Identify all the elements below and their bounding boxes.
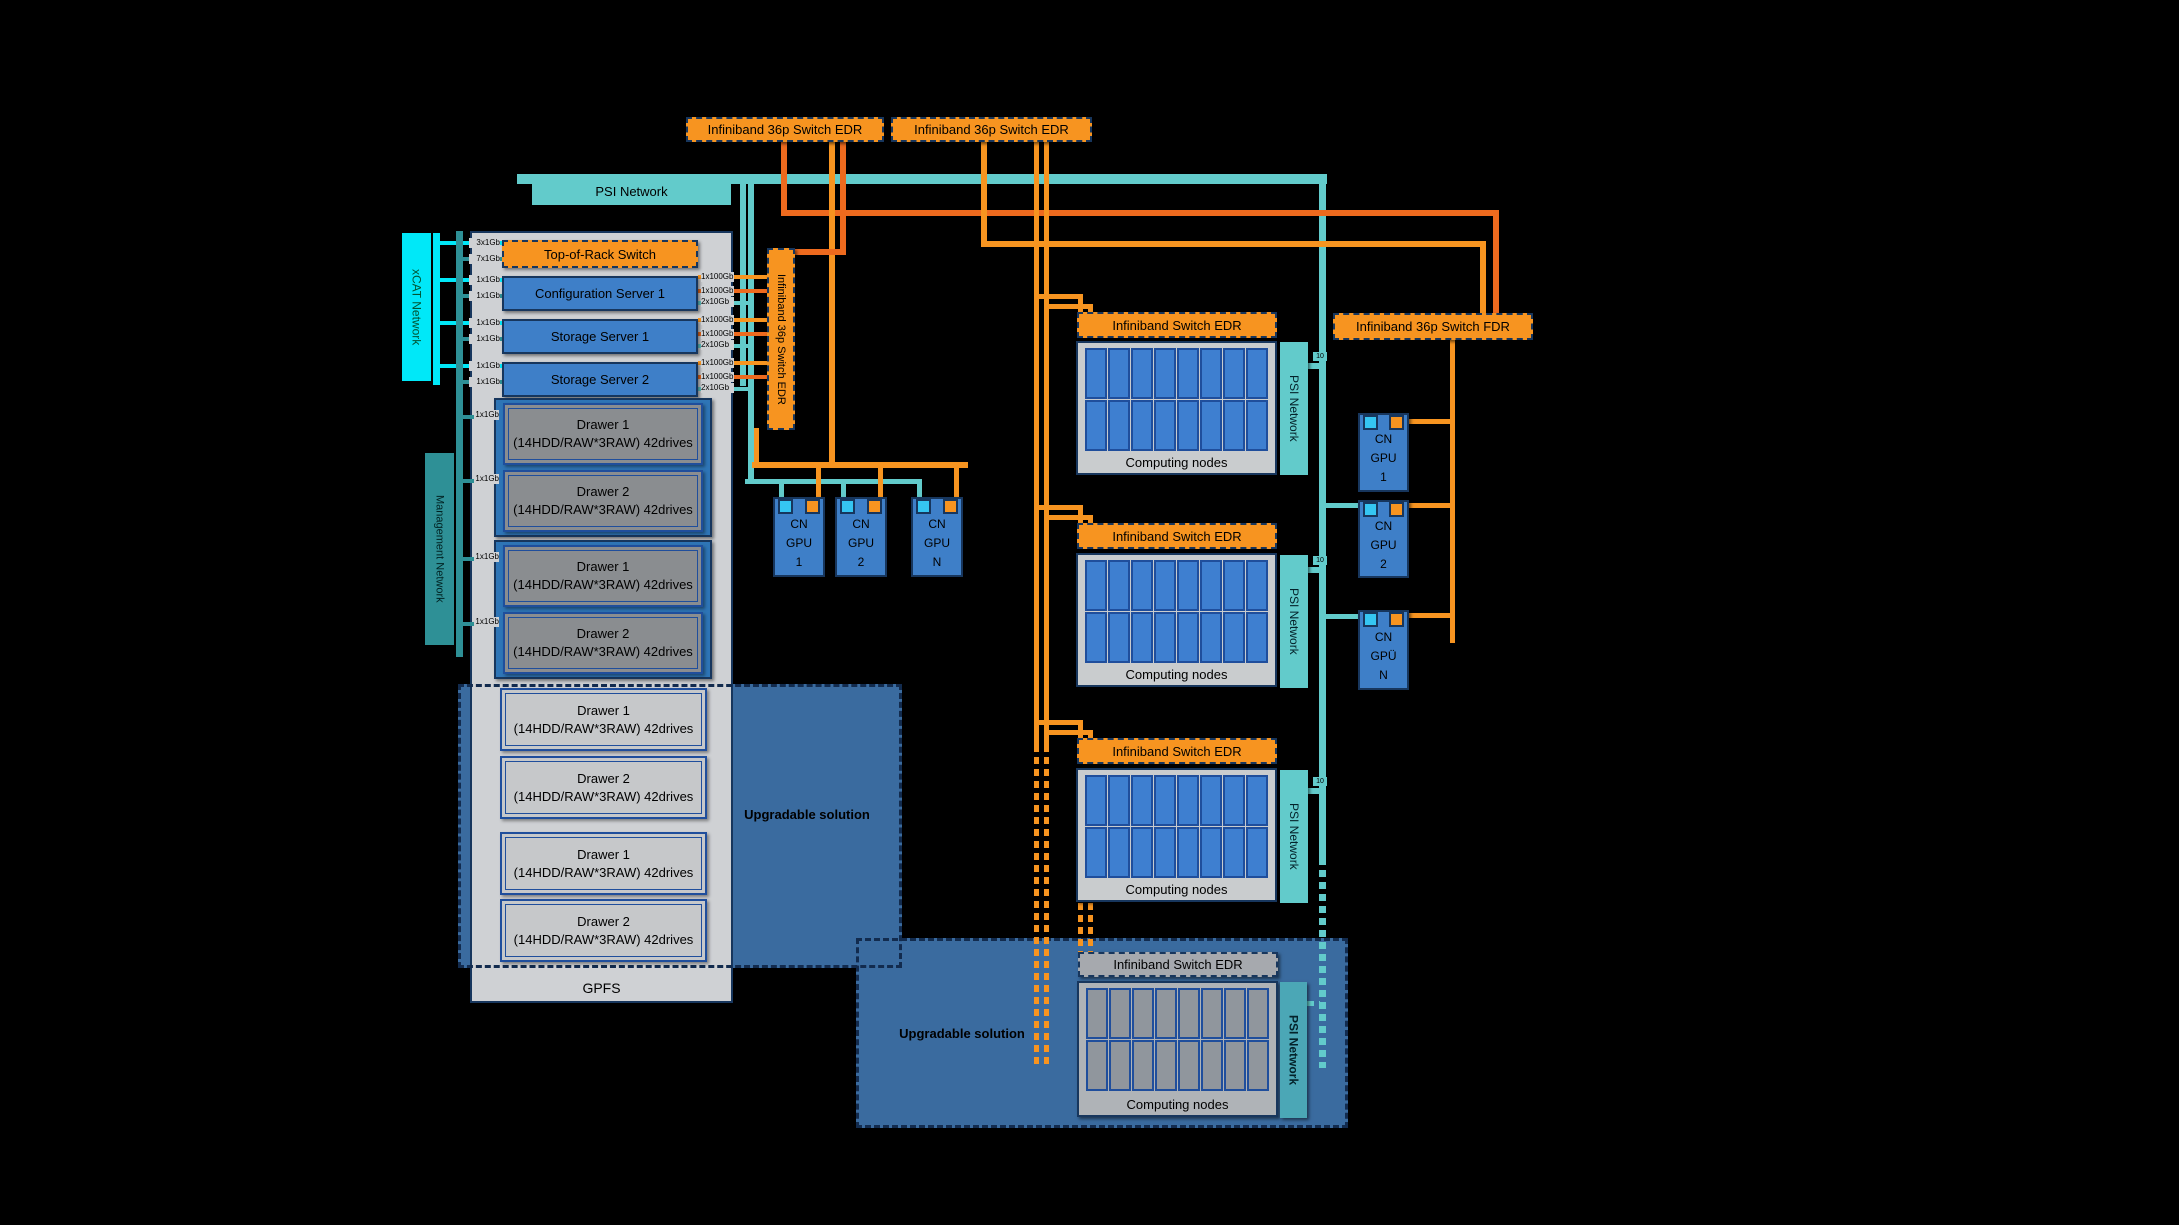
node-cell — [1246, 775, 1268, 826]
psi-port-square — [840, 499, 855, 514]
port-label: 1x100Gb — [701, 315, 734, 325]
xcat-trunk — [433, 233, 440, 385]
node-cell — [1247, 988, 1269, 1039]
port-label: 1x1Gb — [474, 410, 499, 420]
node-cell — [1177, 348, 1199, 399]
psi-drop-line — [740, 184, 746, 386]
port-label: 1x100Gb — [701, 358, 734, 368]
ib-line — [781, 142, 787, 214]
drawer-inner: Drawer 1(14HDD/RAW*3RAW) 42drives — [505, 837, 702, 890]
rack-server-box: Configuration Server 1 — [502, 276, 698, 311]
port-label: 1x1Gb — [469, 291, 500, 301]
ib-branch-drop — [1078, 505, 1083, 523]
infiniband-fdr-switch: Infiniband 36p Switch FDR — [1333, 313, 1533, 340]
psi-right-trunk — [1319, 184, 1326, 858]
ib-branch-drop — [1078, 720, 1083, 738]
drawer-box: Drawer 2(14HDD/RAW*3RAW) 42drives — [500, 899, 707, 962]
drawer-title: Drawer 1 — [577, 846, 630, 864]
node-cell — [1108, 348, 1130, 399]
node-cell — [1109, 1040, 1131, 1091]
cn-gpu-box: CNGPU1 — [1358, 413, 1409, 492]
upgradable-text: Upgradable solution — [744, 807, 870, 822]
cn-ib-drop — [954, 468, 959, 497]
drawer-subtitle: (14HDD/RAW*3RAW) 42drives — [513, 501, 693, 519]
cluster-switch-header: Infiniband Switch EDR — [1077, 312, 1277, 338]
xcat-network-bar: xCAT Network — [402, 233, 431, 381]
cn-ib-bus-feed — [754, 428, 759, 464]
port-label: 2x10Gb — [701, 297, 734, 307]
upgradable-solution-label-bottom: Upgradable solution — [897, 1026, 1027, 1041]
cn-ib-drop — [878, 468, 883, 497]
node-cell — [1200, 827, 1222, 878]
node-cell — [1131, 560, 1153, 611]
switch-label: Infiniband Switch EDR — [1113, 957, 1242, 972]
node-cell — [1177, 560, 1199, 611]
computing-nodes-label: Computing nodes — [1079, 1097, 1276, 1112]
cn-gpu-box: CNGPU1 — [773, 497, 825, 577]
drawer-inner: Drawer 2(14HDD/RAW*3RAW) 42drives — [505, 904, 702, 957]
node-cell — [1224, 988, 1246, 1039]
ib-line — [781, 210, 1499, 216]
ib-port-square — [1389, 612, 1404, 627]
ib-branch-dashed — [1088, 903, 1093, 952]
top-of-rack-switch: Top-of-Rack Switch — [502, 240, 698, 268]
drawer-inner: Drawer 1(14HDD/RAW*3RAW) 42drives — [505, 693, 702, 746]
node-cell — [1200, 400, 1222, 451]
node-cell — [1246, 348, 1268, 399]
node-cell — [1109, 988, 1131, 1039]
drawer-title: Drawer 1 — [577, 558, 630, 576]
port-label: 2x10Gb — [701, 340, 734, 350]
node-cell — [1178, 988, 1200, 1039]
device-label: Storage Server 1 — [551, 329, 649, 344]
uplink-label: 10 — [1313, 352, 1327, 361]
port-label: 1x100Gb — [701, 372, 734, 382]
node-cell — [1246, 612, 1268, 663]
cn-gpu-label: CNGPU1 — [1360, 431, 1407, 486]
node-cell — [1132, 988, 1154, 1039]
node-cell — [1131, 400, 1153, 451]
node-cell — [1085, 348, 1107, 399]
drawer-inner: Drawer 2(14HDD/RAW*3RAW) 42drives — [508, 617, 698, 669]
rack-server-box: Storage Server 1 — [502, 319, 698, 354]
management-network-label: Management Network — [434, 495, 446, 603]
drawer-title: Drawer 2 — [577, 625, 630, 643]
switch-label: Infiniband 36p Switch FDR — [1356, 319, 1510, 334]
drawer-box: Drawer 2(14HDD/RAW*3RAW) 42drives — [500, 756, 707, 819]
ib-branch-dashed — [1078, 903, 1083, 952]
drawer-title: Drawer 2 — [577, 770, 630, 788]
cn-gpu-label: CNGPU1 — [775, 515, 823, 571]
ib-branch-drop — [1088, 515, 1093, 523]
node-cell — [1201, 988, 1223, 1039]
drawer-box: Drawer 2(14HDD/RAW*3RAW) 42drives — [503, 470, 703, 532]
node-cell — [1085, 560, 1107, 611]
computing-nodes-grid — [1085, 348, 1268, 451]
switch-label: Infiniband 36p Switch EDR — [775, 274, 787, 405]
node-cell — [1108, 775, 1130, 826]
node-cell — [1108, 827, 1130, 878]
node-cell — [1224, 1040, 1246, 1091]
gpu-psi-stub — [1326, 614, 1358, 619]
ib-branch — [1034, 294, 1083, 299]
port-label: 2x10Gb — [701, 383, 734, 393]
cluster-switch-header: Infiniband Switch EDR — [1077, 523, 1277, 549]
node-cell — [1177, 612, 1199, 663]
upgradable-solution-label-mid: Upgradable solution — [742, 807, 872, 822]
node-cell — [1131, 612, 1153, 663]
ib-line — [1480, 241, 1486, 315]
drawer-inner: Drawer 2(14HDD/RAW*3RAW) 42drives — [508, 475, 698, 527]
cn-ib-bus — [752, 462, 968, 468]
ib-port-square — [867, 499, 882, 514]
port-label: 1x1Gb — [469, 275, 500, 285]
port-label: 1x1Gb — [469, 377, 500, 387]
cn-gpu-box: CNGPU2 — [1358, 500, 1409, 578]
ib-branch — [1034, 505, 1083, 510]
fdr-trunk — [1450, 340, 1455, 643]
upgradable-text: Upgradable solution — [899, 1026, 1025, 1041]
psi-network-label: PSI Network — [595, 184, 667, 199]
architecture-diagram: Top-of-Rack SwitchConfiguration Server 1… — [0, 0, 2179, 1225]
node-cell — [1154, 400, 1176, 451]
port-label: 1x1Gb — [469, 318, 500, 328]
node-cell — [1155, 1040, 1177, 1091]
drawer-subtitle: (14HDD/RAW*3RAW) 42drives — [514, 864, 694, 882]
drawer-subtitle: (14HDD/RAW*3RAW) 42drives — [513, 576, 693, 594]
psi-port-square — [778, 499, 793, 514]
port-label: 1x100Gb — [701, 286, 734, 296]
uplink-label: 10 — [1313, 556, 1327, 565]
port-label: 1x1Gb — [474, 552, 499, 562]
drawer-subtitle: (14HDD/RAW*3RAW) 42drives — [514, 788, 694, 806]
cn-psi-bus — [745, 479, 922, 484]
computing-nodes-grid — [1085, 775, 1268, 878]
node-cell — [1201, 1040, 1223, 1091]
psi-network-label: PSI Network — [1287, 1015, 1301, 1085]
device-label: Configuration Server 1 — [535, 286, 665, 301]
cn-ib-drop — [816, 468, 821, 497]
cn-gpu-label: CNGPÜN — [1360, 628, 1407, 684]
drawer-inner: Drawer 1(14HDD/RAW*3RAW) 42drives — [508, 408, 698, 460]
psi-network-bar: PSI Network — [1280, 342, 1308, 475]
node-cell — [1131, 827, 1153, 878]
cn-gpu-label: CNGPU2 — [1360, 518, 1407, 572]
cluster-switch-header: Infiniband Switch EDR — [1078, 952, 1278, 977]
drawer-box: Drawer 1(14HDD/RAW*3RAW) 42drives — [500, 688, 707, 751]
drawer-box: Drawer 1(14HDD/RAW*3RAW) 42drives — [503, 545, 703, 607]
node-cell — [1108, 560, 1130, 611]
node-cell — [1200, 775, 1222, 826]
psi-right-trunk-dashed — [1319, 858, 1326, 1068]
psi-network-label: PSI Network — [1287, 803, 1301, 870]
node-cell — [1223, 612, 1245, 663]
port-label: 1x1Gb — [469, 334, 500, 344]
ib-branch — [1034, 720, 1083, 725]
ib-port-square — [1389, 502, 1404, 517]
ib-port-square — [805, 499, 820, 514]
rack-server-box: Storage Server 2 — [502, 362, 698, 397]
psi-port-square — [1363, 415, 1378, 430]
node-cell — [1177, 827, 1199, 878]
drawer-inner: Drawer 1(14HDD/RAW*3RAW) 42drives — [508, 550, 698, 602]
node-cell — [1200, 348, 1222, 399]
cn-gpu-box: CNGPUN — [911, 497, 963, 577]
ib-line — [840, 142, 846, 254]
computing-nodes-label: Computing nodes — [1078, 882, 1275, 897]
psi-network-label: PSI Network — [1287, 588, 1301, 655]
computing-nodes-grid — [1085, 560, 1268, 663]
computing-nodes-label: Computing nodes — [1078, 667, 1275, 682]
node-cell — [1223, 775, 1245, 826]
computing-nodes-container: Computing nodes — [1077, 981, 1278, 1117]
ib-port-square — [1389, 415, 1404, 430]
ib-branch-drop — [1078, 294, 1083, 312]
node-cell — [1154, 612, 1176, 663]
node-cell — [1177, 775, 1199, 826]
node-cell — [1154, 827, 1176, 878]
node-cell — [1223, 827, 1245, 878]
computing-nodes-container: Computing nodes — [1076, 553, 1277, 687]
infiniband-switch-top-left: Infiniband 36p Switch EDR — [686, 117, 884, 142]
ib-line — [795, 249, 846, 255]
switch-label: Infiniband Switch EDR — [1112, 744, 1241, 759]
port-label: 1x100Gb — [701, 329, 734, 339]
cluster-switch-header: Infiniband Switch EDR — [1077, 738, 1277, 764]
drawer-title: Drawer 2 — [577, 483, 630, 501]
node-cell — [1155, 988, 1177, 1039]
drawer-subtitle: (14HDD/RAW*3RAW) 42drives — [514, 931, 694, 949]
drawer-title: Drawer 2 — [577, 913, 630, 931]
node-cell — [1108, 612, 1130, 663]
node-cell — [1131, 775, 1153, 826]
computing-nodes-label: Computing nodes — [1078, 455, 1275, 470]
computing-nodes-container: Computing nodes — [1076, 341, 1277, 475]
node-cell — [1246, 400, 1268, 451]
node-cell — [1108, 400, 1130, 451]
ib-line — [1493, 210, 1499, 315]
drawer-box: Drawer 1(14HDD/RAW*3RAW) 42drives — [500, 832, 707, 895]
cluster-uplink-stub — [1308, 363, 1319, 369]
drawer-box: Drawer 1(14HDD/RAW*3RAW) 42drives — [503, 403, 703, 465]
infiniband-vertical-switch: Infiniband 36p Switch EDR — [767, 248, 795, 430]
node-cell — [1223, 560, 1245, 611]
device-label: Top-of-Rack Switch — [544, 247, 656, 262]
ib-line — [981, 241, 1486, 247]
psi-network-bar: PSI Network — [1280, 770, 1308, 903]
drawer-subtitle: (14HDD/RAW*3RAW) 42drives — [513, 643, 693, 661]
node-cell — [1085, 400, 1107, 451]
drawer-subtitle: (14HDD/RAW*3RAW) 42drives — [514, 720, 694, 738]
xcat-network-label: xCAT Network — [410, 269, 424, 345]
switch-label: Infiniband Switch EDR — [1112, 529, 1241, 544]
port-label: 1x1Gb — [474, 474, 499, 484]
node-cell — [1154, 775, 1176, 826]
node-cell — [1200, 560, 1222, 611]
cluster-uplink-stub — [1308, 567, 1319, 573]
gpu-ib-stub — [1409, 419, 1450, 424]
switch-label: Infiniband 36p Switch EDR — [914, 122, 1069, 137]
cn-gpu-label: CNGPU2 — [837, 515, 885, 571]
management-network-bar: Management Network — [425, 453, 454, 645]
computing-nodes-grid — [1086, 988, 1269, 1091]
cn-gpu-box: CNGPU2 — [835, 497, 887, 577]
port-label: 1x100Gb — [701, 272, 734, 282]
cn-psi-drop — [841, 484, 846, 498]
node-cell — [1085, 775, 1107, 826]
cluster-uplink-stub — [1308, 788, 1319, 794]
drawer-title: Drawer 1 — [577, 416, 630, 434]
node-cell — [1132, 1040, 1154, 1091]
drawer-inner: Drawer 2(14HDD/RAW*3RAW) 42drives — [505, 761, 702, 814]
switch-label: Infiniband Switch EDR — [1112, 318, 1241, 333]
gpfs-title-text: GPFS — [582, 980, 620, 996]
gpu-ib-stub — [1409, 613, 1450, 618]
node-cell — [1154, 348, 1176, 399]
ib-trunk — [1044, 142, 1049, 745]
node-cell — [1246, 560, 1268, 611]
psi-network-label-box: PSI Network — [532, 177, 731, 205]
psi-port-square — [916, 499, 931, 514]
psi-port-square — [1363, 502, 1378, 517]
node-cell — [1178, 1040, 1200, 1091]
node-cell — [1086, 1040, 1108, 1091]
drawer-subtitle: (14HDD/RAW*3RAW) 42drives — [513, 434, 693, 452]
psi-network-bar: PSI Network — [1280, 555, 1308, 688]
drawer-title: Drawer 1 — [577, 702, 630, 720]
psi-network-label: PSI Network — [1287, 375, 1301, 442]
port-label: 3x1Gb — [469, 238, 500, 248]
drawer-box: Drawer 2(14HDD/RAW*3RAW) 42drives — [503, 612, 703, 674]
gpfs-label: GPFS — [470, 980, 733, 996]
ib-trunk-dashed — [1034, 745, 1039, 1067]
port-label: 1x1Gb — [474, 617, 499, 627]
node-cell — [1246, 827, 1268, 878]
ib-line — [829, 142, 835, 468]
gpu-psi-stub — [1326, 503, 1358, 508]
psi-stub-dashed — [1307, 1001, 1320, 1006]
ib-trunk-dashed — [1044, 745, 1049, 1067]
ib-port-square — [943, 499, 958, 514]
cn-gpu-box: CNGPÜN — [1358, 610, 1409, 690]
infiniband-switch-top-right: Infiniband 36p Switch EDR — [891, 117, 1092, 142]
port-label: 7x1Gb — [469, 254, 500, 264]
computing-nodes-container: Computing nodes — [1076, 768, 1277, 902]
node-cell — [1223, 348, 1245, 399]
ib-trunk — [1034, 142, 1039, 745]
node-cell — [1131, 348, 1153, 399]
cn-psi-drop — [917, 484, 922, 498]
ib-line — [981, 142, 987, 246]
node-cell — [1085, 827, 1107, 878]
node-cell — [1154, 560, 1176, 611]
psi-port-square — [1363, 612, 1378, 627]
node-cell — [1177, 400, 1199, 451]
node-cell — [1086, 988, 1108, 1039]
psi-network-bar: PSI Network — [1280, 982, 1307, 1118]
port-label: 1x1Gb — [469, 361, 500, 371]
gpu-ib-stub — [1409, 503, 1450, 508]
node-cell — [1085, 612, 1107, 663]
node-cell — [1247, 1040, 1269, 1091]
node-cell — [1200, 612, 1222, 663]
uplink-label: 10 — [1313, 777, 1327, 786]
cn-gpu-label: CNGPUN — [913, 515, 961, 571]
switch-label: Infiniband 36p Switch EDR — [708, 122, 863, 137]
device-label: Storage Server 2 — [551, 372, 649, 387]
cn-psi-drop — [779, 484, 784, 498]
node-cell — [1223, 400, 1245, 451]
ib-branch-drop — [1088, 730, 1093, 738]
